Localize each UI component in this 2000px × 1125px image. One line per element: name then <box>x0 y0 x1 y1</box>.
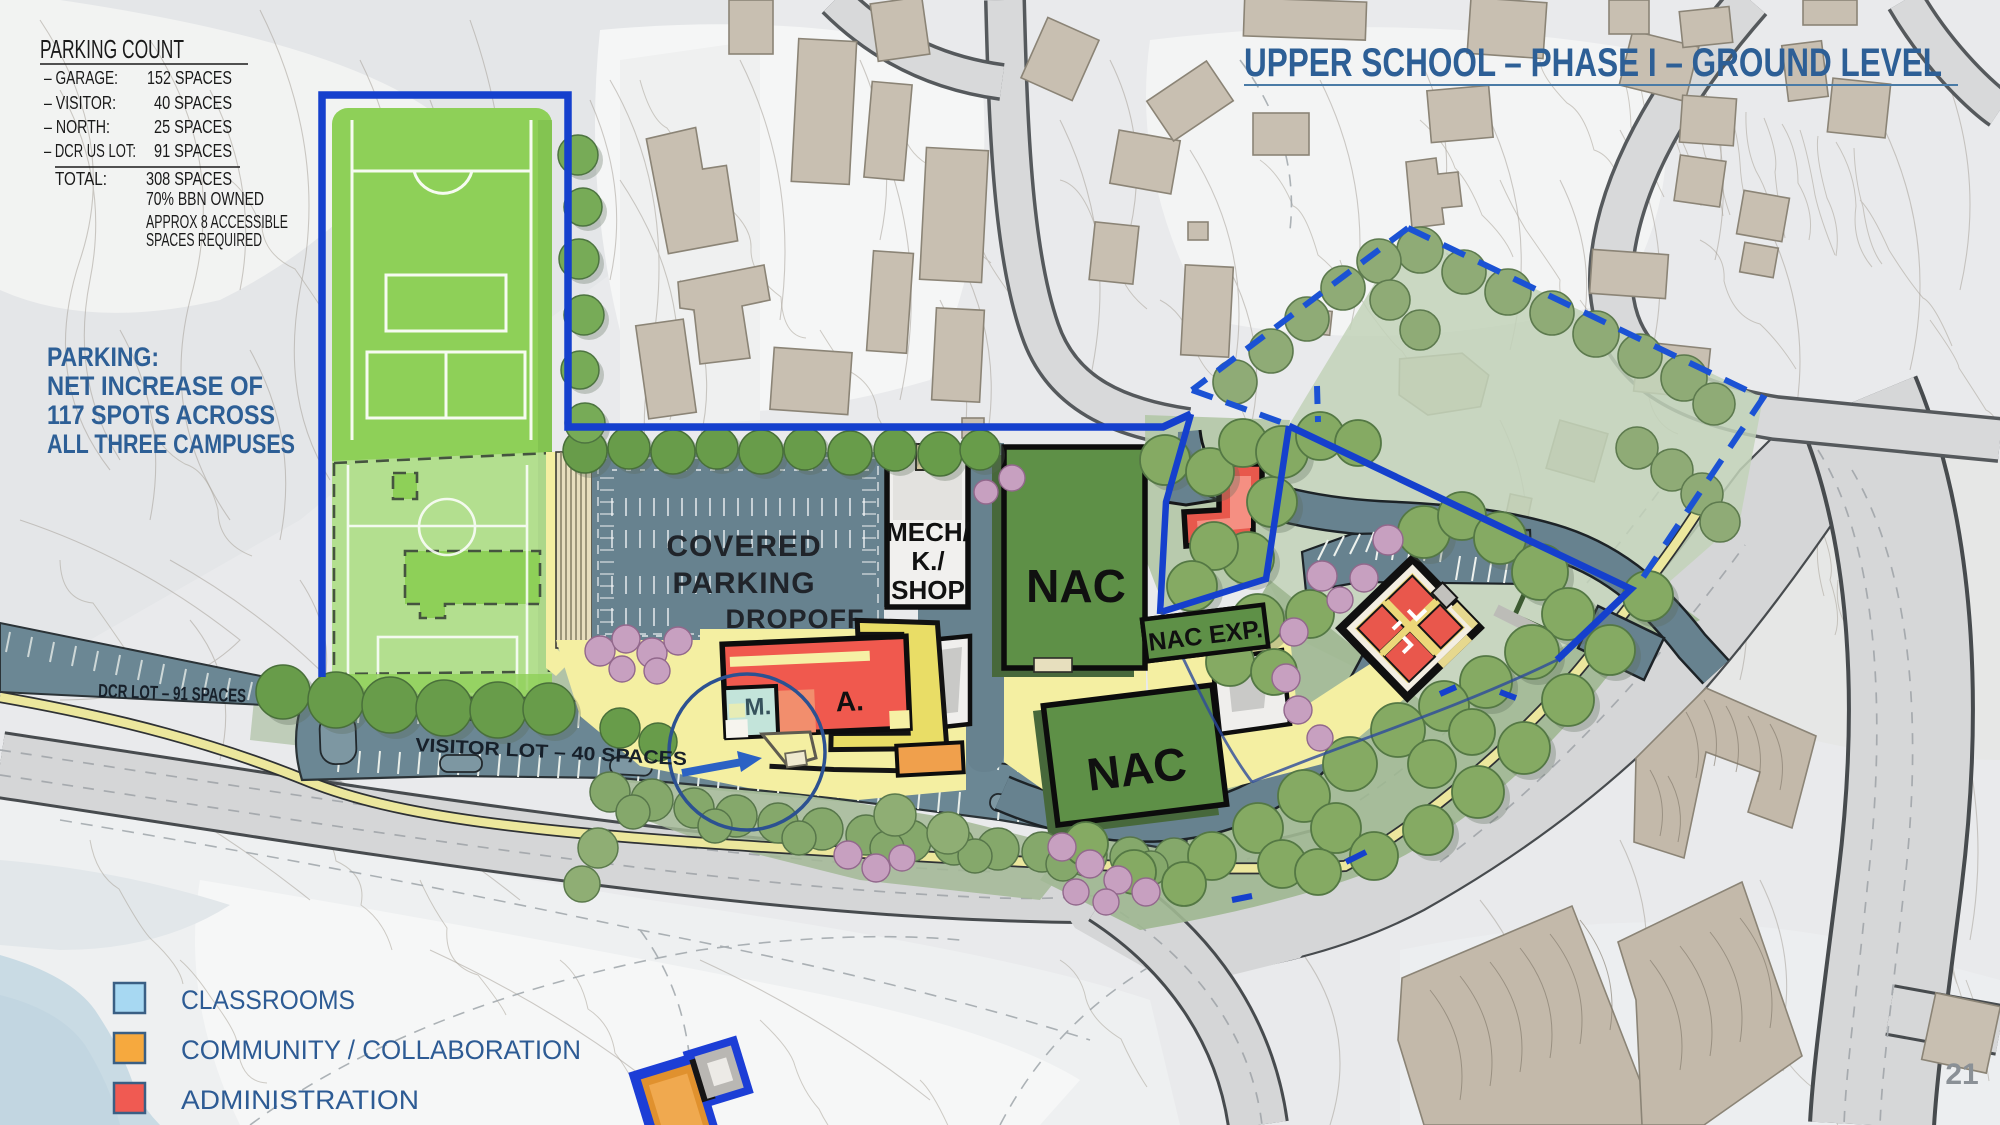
svg-text:25 SPACES: 25 SPACES <box>154 117 232 137</box>
svg-text:COVERED: COVERED <box>666 530 821 563</box>
svg-text:K./: K./ <box>911 546 944 576</box>
svg-text:– DCR US LOT:: – DCR US LOT: <box>44 141 136 161</box>
svg-text:DROPOFF: DROPOFF <box>726 604 865 634</box>
svg-text:308 SPACES: 308 SPACES <box>146 169 232 189</box>
svg-text:ADMINISTRATION: ADMINISTRATION <box>181 1085 419 1115</box>
svg-text:MECH/: MECH/ <box>886 517 970 547</box>
svg-text:91 SPACES: 91 SPACES <box>154 141 232 161</box>
svg-text:NAC: NAC <box>1026 560 1126 612</box>
svg-text:152 SPACES: 152 SPACES <box>147 68 232 88</box>
svg-text:SPACES REQUIRED: SPACES REQUIRED <box>146 230 262 250</box>
svg-text:40 SPACES: 40 SPACES <box>154 93 232 113</box>
svg-text:NET INCREASE OF: NET INCREASE OF <box>47 371 263 401</box>
svg-text:– GARAGE:: – GARAGE: <box>44 68 118 88</box>
svg-text:M.: M. <box>744 693 772 721</box>
svg-text:SHOP: SHOP <box>891 575 965 605</box>
svg-text:COMMUNITY / COLLABORATION: COMMUNITY / COLLABORATION <box>181 1035 581 1065</box>
svg-text:APPROX 8 ACCESSIBLE: APPROX 8 ACCESSIBLE <box>146 212 288 232</box>
svg-text:UPPER SCHOOL – PHASE I – GROUN: UPPER SCHOOL – PHASE I – GROUND LEVEL <box>1244 41 1942 85</box>
svg-text:TOTAL:: TOTAL: <box>55 169 107 189</box>
svg-text:– NORTH:: – NORTH: <box>44 117 110 137</box>
svg-text:PARKING COUNT: PARKING COUNT <box>40 34 184 64</box>
svg-text:CLASSROOMS: CLASSROOMS <box>181 985 355 1015</box>
svg-text:– VISITOR:: – VISITOR: <box>44 93 116 113</box>
svg-text:PARKING:: PARKING: <box>47 342 159 372</box>
svg-text:ALL THREE CAMPUSES: ALL THREE CAMPUSES <box>47 429 295 459</box>
svg-text:117 SPOTS ACROSS: 117 SPOTS ACROSS <box>47 400 275 430</box>
svg-text:PARKING: PARKING <box>672 567 815 600</box>
svg-text:A.: A. <box>835 685 864 717</box>
svg-text:21: 21 <box>1945 1058 1978 1091</box>
svg-text:70% BBN OWNED: 70% BBN OWNED <box>146 189 264 209</box>
